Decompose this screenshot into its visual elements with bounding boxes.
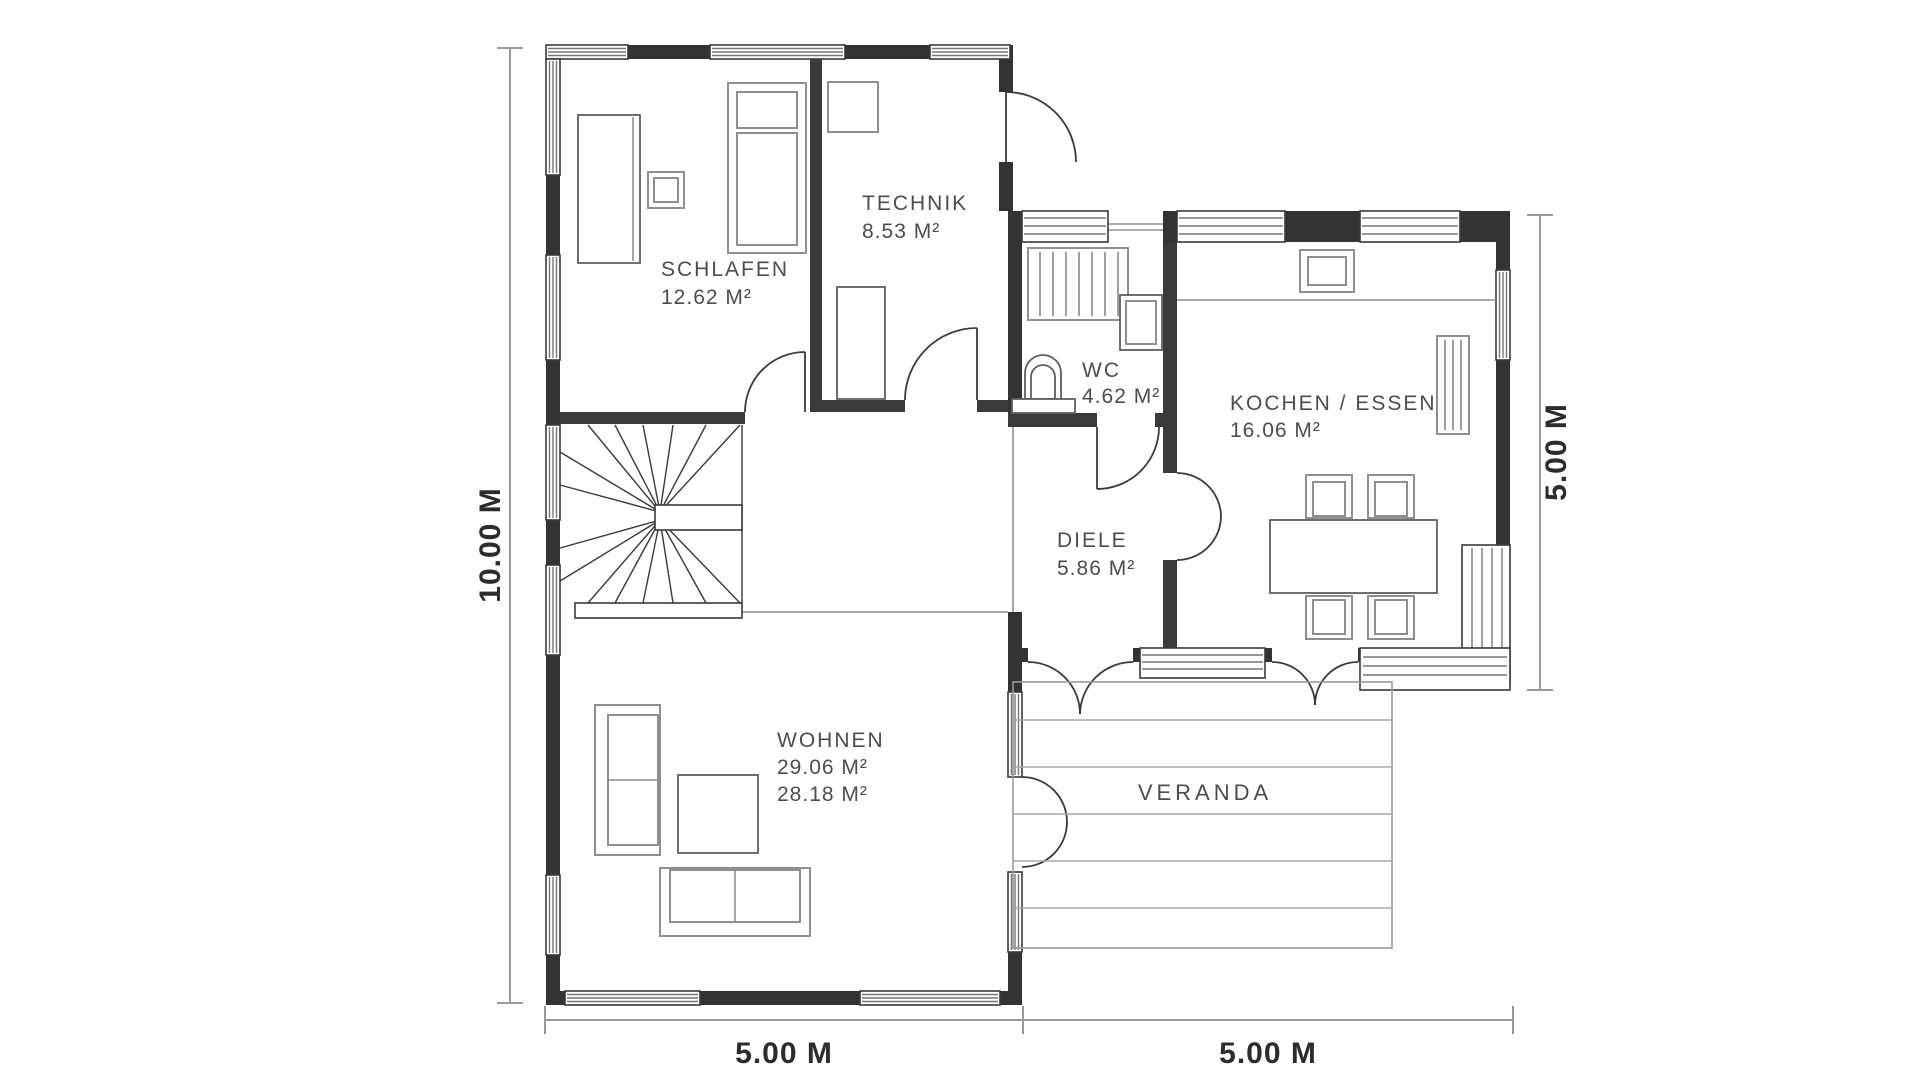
- nightstand-inner: [654, 178, 678, 202]
- room-schlafen-area: 12.62 M²: [661, 286, 752, 309]
- veranda-deck: [1013, 682, 1392, 948]
- sofa-horizontal: [660, 868, 810, 936]
- schlafen-furniture: [578, 83, 806, 263]
- room-wohnen-area2: 28.18 M²: [777, 783, 868, 806]
- room-schlafen-label: SCHLAFEN: [661, 258, 789, 281]
- room-diele-label: DIELE: [1057, 529, 1128, 552]
- room-wc-label: WC: [1082, 359, 1121, 382]
- chair-inner: [1313, 482, 1345, 516]
- kitchen-sink: [1300, 250, 1354, 292]
- room-technik-label: TECHNIK: [862, 192, 968, 215]
- window: [1022, 211, 1108, 242]
- entrance-door: [1006, 92, 1076, 162]
- room-veranda-label: VERANDA: [1138, 780, 1272, 805]
- sofa-vertical: [595, 705, 660, 855]
- chair-inner: [1375, 600, 1407, 634]
- diele-veranda-door: [1028, 662, 1133, 714]
- stair-base: [575, 603, 742, 618]
- appliance: [828, 82, 878, 132]
- dimension-right: 5.00 M: [1527, 215, 1573, 690]
- floor-plan-canvas: SCHLAFEN 12.62 M² TECHNIK 8.53 M² WC 4.6…: [0, 0, 1920, 1080]
- kitchen-furniture: [1177, 250, 1496, 639]
- kitchen-appliance: [1437, 336, 1469, 434]
- technik-door: [905, 328, 977, 400]
- dimension-left: 10.00 M: [474, 48, 523, 1003]
- wc-door: [1097, 427, 1159, 489]
- wardrobe: [578, 115, 640, 263]
- dimension-bottom-right-label: 5.00 M: [1219, 1037, 1317, 1070]
- shower: [1028, 248, 1128, 320]
- schlafen-door: [745, 352, 805, 412]
- kitchen-double-door: [1177, 473, 1221, 560]
- room-diele-area: 5.86 M²: [1057, 557, 1135, 580]
- wohnen-veranda-door: [1022, 777, 1067, 867]
- chair-inner: [1313, 600, 1345, 634]
- room-wohnen-label: WOHNEN: [777, 729, 885, 752]
- window: [1008, 692, 1022, 952]
- coffee-table: [678, 775, 758, 853]
- stair-landing: [655, 505, 742, 530]
- room-wohnen-area: 29.06 M²: [777, 756, 868, 779]
- window: [1140, 648, 1265, 678]
- dining-table: [1270, 520, 1437, 593]
- kochen-veranda-door: [1272, 662, 1358, 705]
- wc-sink: [1120, 295, 1162, 350]
- room-kochen-area: 16.06 M²: [1230, 419, 1321, 442]
- window: [1496, 270, 1510, 360]
- dimension-right-label: 5.00 M: [1540, 403, 1573, 501]
- room-kochen-label: KOCHEN / ESSEN: [1230, 392, 1437, 415]
- room-wc-area: 4.62 M²: [1082, 385, 1160, 408]
- dimension-bottom: 5.00 M 5.00 M: [545, 1006, 1513, 1070]
- dimension-bottom-left-label: 5.00 M: [735, 1037, 833, 1070]
- dimension-left-label: 10.00 M: [474, 487, 507, 602]
- room-technik-area: 8.53 M²: [862, 220, 940, 243]
- floor-plan-page: SCHLAFEN 12.62 M² TECHNIK 8.53 M² WC 4.6…: [0, 0, 1920, 1080]
- staircase: [560, 425, 742, 618]
- bed: [728, 83, 806, 253]
- chair-inner: [1375, 482, 1407, 516]
- boiler: [837, 287, 885, 399]
- dining-set: [1270, 475, 1437, 639]
